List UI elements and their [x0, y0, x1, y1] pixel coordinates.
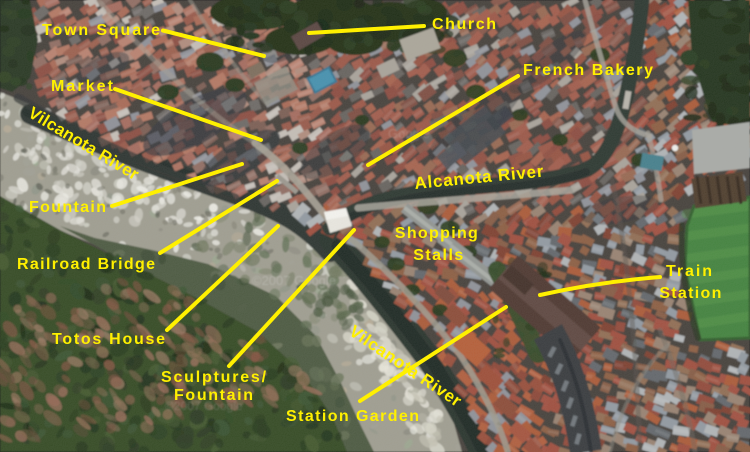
svg-text:Station Garden: Station Garden [286, 408, 420, 425]
svg-text:Fountain: Fountain [174, 387, 255, 404]
svg-text:Stalls: Stalls [413, 247, 464, 264]
svg-text:Shopping: Shopping [395, 225, 479, 242]
svg-text:Station: Station [659, 285, 722, 302]
svg-text:Fountain: Fountain [29, 199, 107, 216]
svg-text:French Bakery: French Bakery [523, 62, 655, 79]
svg-text:Totos House: Totos House [52, 331, 167, 348]
svg-text:Church: Church [432, 16, 498, 33]
svg-text:Sculptures/: Sculptures/ [161, 369, 268, 386]
svg-text:Town Square: Town Square [42, 22, 162, 39]
svg-text:Train: Train [666, 263, 714, 280]
svg-text:Railroad Bridge: Railroad Bridge [17, 256, 156, 273]
svg-text:Market: Market [51, 78, 115, 95]
